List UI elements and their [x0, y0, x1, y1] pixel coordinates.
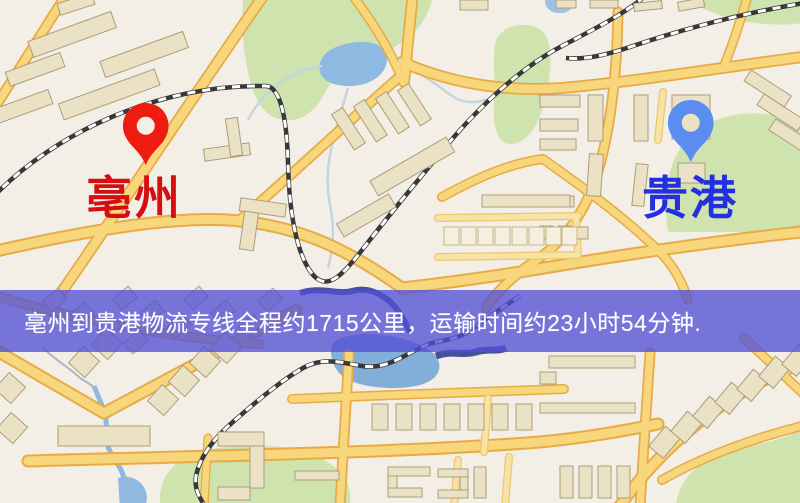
route-map-screenshot: 亳州 贵港 亳州到贵港物流专线全程约1715公里，运输时间约23小时54分钟.	[0, 0, 800, 503]
route-info-banner: 亳州到贵港物流专线全程约1715公里，运输时间约23小时54分钟.	[0, 290, 800, 352]
map-canvas[interactable]	[0, 0, 800, 503]
route-info-text: 亳州到贵港物流专线全程约1715公里，运输时间约23小时54分钟.	[0, 304, 701, 338]
origin-pin-icon[interactable]	[123, 103, 169, 165]
